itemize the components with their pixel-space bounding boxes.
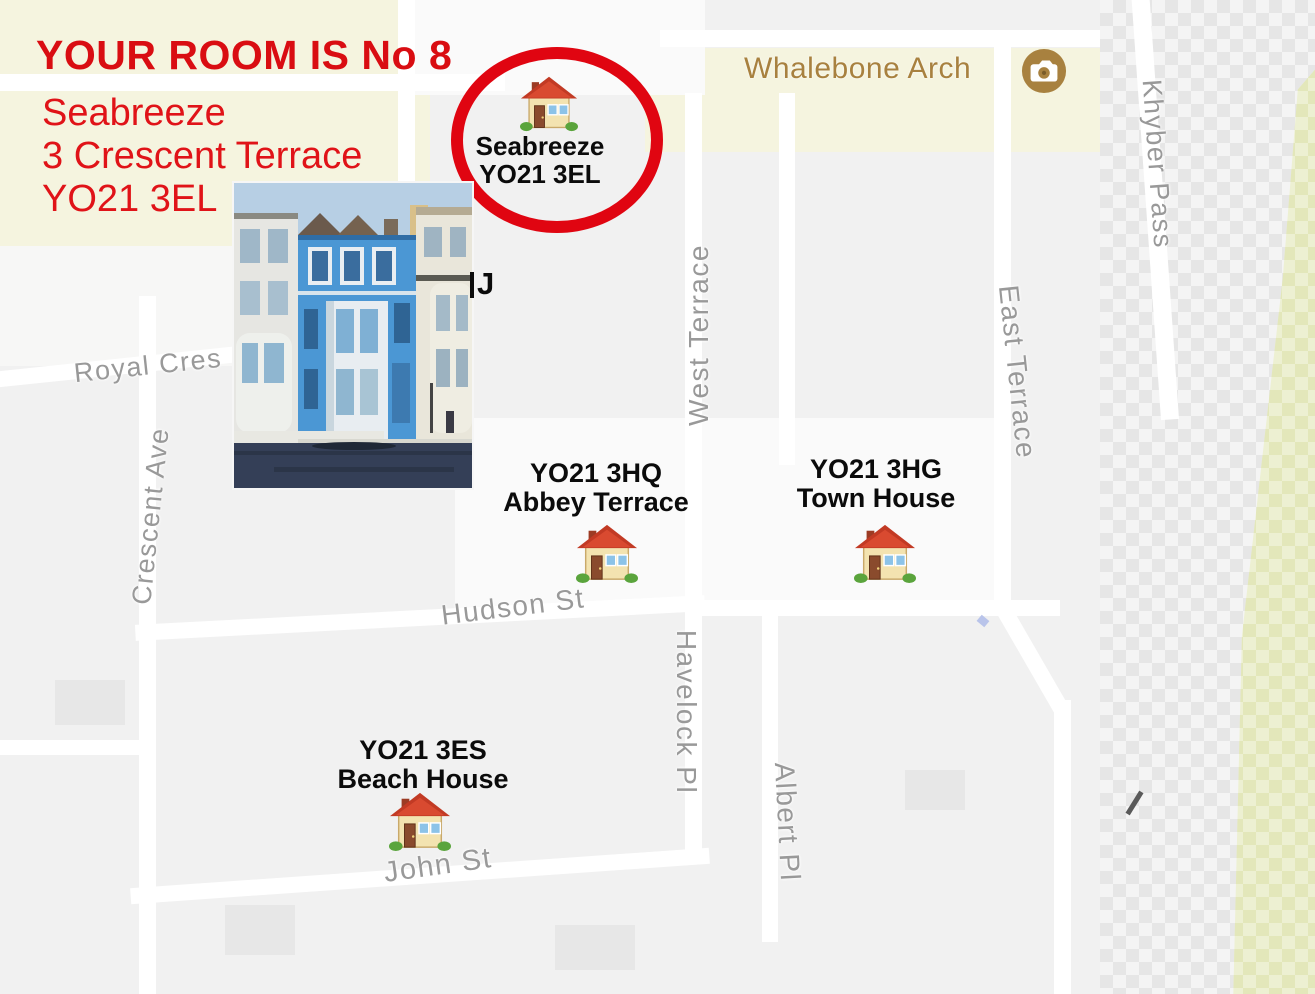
house-icon-seabreeze[interactable] bbox=[520, 74, 578, 132]
house-icon-abbey-terrace[interactable] bbox=[576, 522, 638, 584]
house-icon-beach-house[interactable] bbox=[389, 790, 451, 852]
place-name: Abbey Terrace bbox=[503, 488, 689, 517]
street-label-west-terrace: West Terrace bbox=[683, 244, 715, 426]
place-name: Seabreeze bbox=[476, 132, 605, 160]
marker-label-seabreeze: Seabreeze YO21 3EL bbox=[476, 132, 605, 188]
road-segment bbox=[660, 30, 1100, 47]
postcode: YO21 3HG bbox=[797, 455, 956, 484]
address-line-2: 3 Crescent Terrace bbox=[42, 135, 362, 178]
street-label-havelock-pl: Havelock Pl bbox=[670, 630, 702, 794]
marker-label-beach-house: YO21 3ES Beach House bbox=[337, 736, 508, 794]
guest-house-photo bbox=[234, 183, 472, 488]
camera-icon[interactable] bbox=[1021, 48, 1067, 94]
postcode: YO21 3HQ bbox=[503, 459, 689, 488]
road-segment bbox=[0, 740, 140, 755]
property-address: Seabreeze 3 Crescent Terrace YO21 3EL bbox=[42, 92, 362, 221]
address-line-1: Seabreeze bbox=[42, 92, 362, 135]
building-block bbox=[55, 680, 125, 725]
building-block bbox=[905, 770, 965, 810]
marker-label-abbey-terrace: YO21 3HQ Abbey Terrace bbox=[503, 459, 689, 517]
road-segment bbox=[700, 600, 1060, 616]
house-icon-town-house[interactable] bbox=[854, 522, 916, 584]
address-line-3: YO21 3EL bbox=[42, 178, 362, 221]
hidden-label-sliver bbox=[470, 272, 474, 298]
map-canvas: Royal Cres Crescent Ave West Terrace Eas… bbox=[0, 0, 1315, 994]
marker-label-town-house: YO21 3HG Town House bbox=[797, 455, 956, 513]
hidden-label-fragment: J bbox=[477, 266, 494, 302]
building-block bbox=[555, 925, 635, 970]
postcode: YO21 3ES bbox=[337, 736, 508, 765]
poi-label-whalebone-arch: Whalebone Arch bbox=[744, 52, 971, 86]
building-block bbox=[225, 905, 295, 955]
street-label-albert-pl: Albert Pl bbox=[768, 762, 806, 883]
postcode: YO21 3EL bbox=[476, 160, 605, 188]
road-segment bbox=[1054, 700, 1071, 994]
room-number-title: YOUR ROOM IS No 8 bbox=[36, 32, 452, 79]
road-segment bbox=[779, 93, 795, 465]
place-name: Town House bbox=[797, 484, 956, 513]
